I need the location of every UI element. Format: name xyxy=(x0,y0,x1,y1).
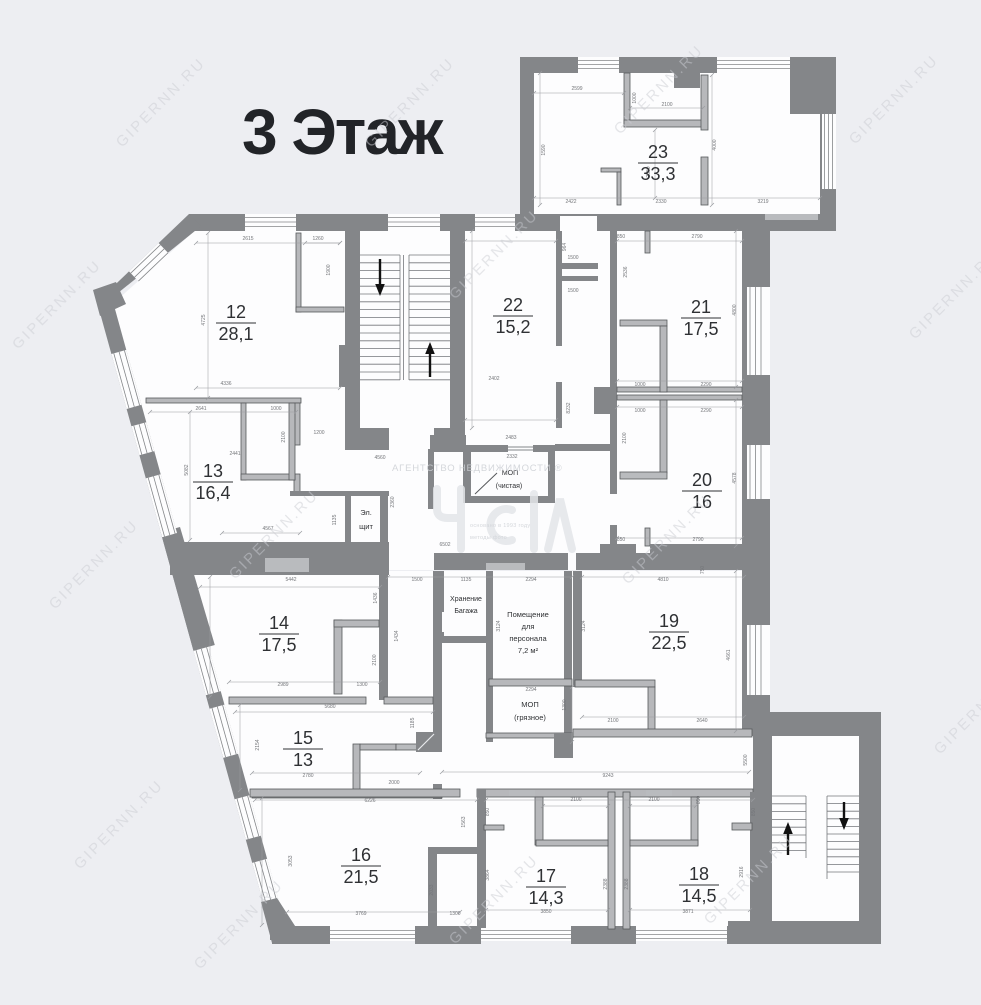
svg-text:2100: 2100 xyxy=(661,102,672,108)
svg-text:1500: 1500 xyxy=(411,577,422,583)
svg-text:23: 23 xyxy=(648,142,668,162)
svg-text:13: 13 xyxy=(293,750,313,770)
svg-text:5500: 5500 xyxy=(743,754,749,765)
svg-text:3769: 3769 xyxy=(355,911,366,917)
svg-text:2100: 2100 xyxy=(607,718,618,724)
svg-text:1300: 1300 xyxy=(449,911,460,917)
svg-text:персонала: персонала xyxy=(509,634,547,643)
svg-text:2154: 2154 xyxy=(255,739,261,750)
svg-text:2640: 2640 xyxy=(696,718,707,724)
svg-text:3124: 3124 xyxy=(581,620,587,631)
svg-text:15,2: 15,2 xyxy=(495,317,530,337)
svg-text:22: 22 xyxy=(503,295,523,315)
svg-text:1000: 1000 xyxy=(634,382,645,388)
svg-text:4000: 4000 xyxy=(712,139,718,150)
svg-text:15: 15 xyxy=(293,728,313,748)
svg-text:основано в 1993 году: основано в 1993 году xyxy=(470,523,530,529)
svg-text:19: 19 xyxy=(659,611,679,631)
svg-text:2100: 2100 xyxy=(372,654,378,665)
svg-text:2388: 2388 xyxy=(624,878,630,889)
svg-text:2422: 2422 xyxy=(565,199,576,205)
svg-text:2599: 2599 xyxy=(571,86,582,92)
svg-text:5442: 5442 xyxy=(285,577,296,583)
svg-text:4725: 4725 xyxy=(201,314,207,325)
svg-text:Помещение: Помещение xyxy=(507,610,549,619)
svg-text:850: 850 xyxy=(696,796,702,805)
svg-text:2100: 2100 xyxy=(281,431,287,442)
svg-text:21: 21 xyxy=(691,297,711,317)
svg-text:1300: 1300 xyxy=(562,699,568,710)
svg-text:1300: 1300 xyxy=(356,682,367,688)
svg-text:2615: 2615 xyxy=(242,236,253,242)
svg-text:3871: 3871 xyxy=(682,909,693,915)
svg-text:3053: 3053 xyxy=(288,855,294,866)
svg-text:Эл.: Эл. xyxy=(360,508,372,517)
svg-text:16,4: 16,4 xyxy=(195,483,230,503)
svg-text:(чистая): (чистая) xyxy=(496,483,523,490)
svg-text:1900: 1900 xyxy=(326,264,332,275)
svg-text:2989: 2989 xyxy=(277,682,288,688)
svg-text:для: для xyxy=(522,622,535,631)
svg-text:1260: 1260 xyxy=(312,236,323,242)
svg-text:5680: 5680 xyxy=(324,704,335,710)
svg-text:2100: 2100 xyxy=(648,797,659,803)
svg-text:1434: 1434 xyxy=(394,630,400,641)
svg-text:(грязное): (грязное) xyxy=(514,713,546,722)
svg-text:4560: 4560 xyxy=(374,455,385,461)
svg-text:2330: 2330 xyxy=(655,199,666,205)
svg-text:2360: 2360 xyxy=(390,496,396,507)
svg-text:1200: 1200 xyxy=(313,430,324,436)
svg-text:8232: 8232 xyxy=(566,402,572,413)
svg-text:22,5: 22,5 xyxy=(651,633,686,653)
svg-text:Багажа: Багажа xyxy=(454,608,477,615)
svg-text:2033: 2033 xyxy=(429,884,435,895)
svg-text:14: 14 xyxy=(269,613,289,633)
svg-text:964: 964 xyxy=(562,243,568,252)
svg-text:4800: 4800 xyxy=(732,304,738,315)
svg-text:7,2 м²: 7,2 м² xyxy=(518,646,539,655)
svg-text:6502: 6502 xyxy=(439,542,450,548)
svg-text:1135: 1135 xyxy=(461,577,472,583)
svg-text:2290: 2290 xyxy=(700,408,711,414)
svg-text:1590: 1590 xyxy=(541,144,547,155)
svg-text:850: 850 xyxy=(751,808,757,817)
svg-text:14,5: 14,5 xyxy=(681,886,716,906)
svg-text:21,5: 21,5 xyxy=(343,867,378,887)
svg-text:1500: 1500 xyxy=(567,288,578,294)
svg-text:2536: 2536 xyxy=(623,266,629,277)
svg-text:2780: 2780 xyxy=(302,773,313,779)
svg-text:4810: 4810 xyxy=(657,577,668,583)
svg-text:2332: 2332 xyxy=(506,454,517,460)
svg-text:12: 12 xyxy=(226,302,246,322)
svg-text:2290: 2290 xyxy=(700,382,711,388)
svg-text:14,3: 14,3 xyxy=(528,888,563,908)
svg-text:6226: 6226 xyxy=(364,798,375,804)
svg-text:9243: 9243 xyxy=(602,773,613,779)
svg-text:1000: 1000 xyxy=(634,408,645,414)
svg-text:850: 850 xyxy=(617,537,626,543)
svg-text:МОП: МОП xyxy=(521,700,538,709)
svg-text:2294: 2294 xyxy=(525,687,536,693)
svg-text:щит: щит xyxy=(359,522,373,531)
svg-text:17,5: 17,5 xyxy=(683,319,718,339)
svg-text:2483: 2483 xyxy=(505,435,516,441)
svg-text:2441: 2441 xyxy=(229,451,240,457)
svg-text:1500: 1500 xyxy=(567,255,578,261)
svg-text:3864: 3864 xyxy=(485,869,491,880)
svg-text:3219: 3219 xyxy=(757,199,768,205)
svg-text:2100: 2100 xyxy=(622,432,628,443)
svg-text:750: 750 xyxy=(700,566,706,575)
svg-text:Хранение: Хранение xyxy=(450,596,482,603)
svg-text:методы фото: методы фото xyxy=(470,535,507,541)
svg-text:1185: 1185 xyxy=(410,717,416,728)
svg-text:1436: 1436 xyxy=(373,592,379,603)
svg-text:20: 20 xyxy=(692,470,712,490)
svg-text:2790: 2790 xyxy=(692,537,703,543)
svg-text:3850: 3850 xyxy=(540,909,551,915)
svg-text:2388: 2388 xyxy=(603,878,609,889)
svg-text:2641: 2641 xyxy=(195,406,206,412)
svg-text:5082: 5082 xyxy=(184,464,190,475)
svg-text:1563: 1563 xyxy=(461,816,467,827)
svg-text:АГЕНТСТВО НЕДВИЖИМОСТИ ®: АГЕНТСТВО НЕДВИЖИМОСТИ ® xyxy=(392,463,563,474)
svg-text:2100: 2100 xyxy=(570,797,581,803)
svg-text:16: 16 xyxy=(351,845,371,865)
svg-text:4578: 4578 xyxy=(732,472,738,483)
svg-text:4336: 4336 xyxy=(220,381,231,387)
svg-text:17: 17 xyxy=(536,866,556,886)
svg-text:28,1: 28,1 xyxy=(218,324,253,344)
svg-text:4661: 4661 xyxy=(726,649,732,660)
svg-text:1135: 1135 xyxy=(332,514,338,525)
svg-text:850: 850 xyxy=(485,808,491,817)
svg-text:1000: 1000 xyxy=(270,406,281,412)
svg-text:850: 850 xyxy=(617,234,626,240)
svg-text:2000: 2000 xyxy=(388,780,399,786)
svg-text:2402: 2402 xyxy=(488,376,499,382)
svg-text:2790: 2790 xyxy=(691,234,702,240)
svg-text:17,5: 17,5 xyxy=(261,635,296,655)
svg-text:33,3: 33,3 xyxy=(640,164,675,184)
svg-text:3124: 3124 xyxy=(496,620,502,631)
svg-text:18: 18 xyxy=(689,864,709,884)
svg-text:2294: 2294 xyxy=(525,577,536,583)
svg-text:13: 13 xyxy=(203,461,223,481)
